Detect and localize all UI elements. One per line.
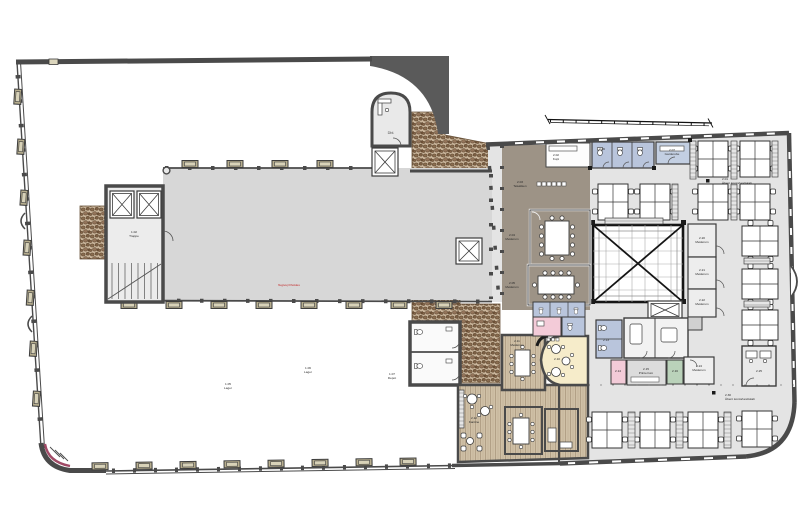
depot-label-no: 2.16 [672,369,678,373]
mode5-label-name: Møderum [695,272,709,276]
kontor-sm-label-no: 2.25 [756,369,762,373]
lounge-label-no: 2.10 [554,357,560,361]
mode2-label-name: Møderum [505,285,519,289]
mode6-label-name: Møderum [695,302,709,306]
tekokken-label-name: Tekøkken [513,184,527,188]
kontor-top-label-name: Åbent kontorlandskab [722,180,752,185]
red-note: flugtvej friholdes [278,283,300,287]
mode4-label-name: Møderum [695,240,709,244]
open2-label-name: Lager [304,370,312,374]
wc2-label-no: 2.13 [603,338,609,342]
mode1-label-name: Møderum [505,237,519,241]
garderobe-label-name: Garderobe [665,152,680,156]
floor-plan-drawing: flugtvej friholdes [0,0,800,523]
reng-label-no: 2.14 [615,369,621,373]
mid-wc-suite [410,322,460,385]
kantine-label-name: Kantine [469,420,480,424]
mode7-label-name: Møderum [692,368,706,372]
open1-label-name: Lager [224,386,232,390]
open3-label-name: Depot [388,376,396,380]
elevator-arch [372,148,398,176]
elevator-hall [456,238,482,264]
bay-window [791,266,797,297]
stair-annex [106,186,173,302]
site-boundary-line [545,115,713,128]
elevator-annex-1 [110,191,134,218]
elevator-annex-2 [137,191,161,218]
printer-label-name: Printerrum [639,371,654,375]
annex-label-name: Trappe [129,234,139,238]
wc1-label-no: 2.06 [599,147,605,151]
round-column [163,167,170,174]
elevator-atrium [648,301,682,319]
arch-room-label: Dbl. [388,131,395,135]
kopi-label-name: Kopi [553,157,560,161]
kontor-bund-label-name: Åbent kontorlandskab [725,396,755,401]
mode3-label-name: Møderum [510,343,524,347]
floor-plan-canvas: flugtvej friholdes [0,0,800,523]
atrium-skylight [590,220,686,304]
wall-niche [28,316,32,332]
wall-niche [21,213,25,229]
pink-room-1 [533,317,561,336]
